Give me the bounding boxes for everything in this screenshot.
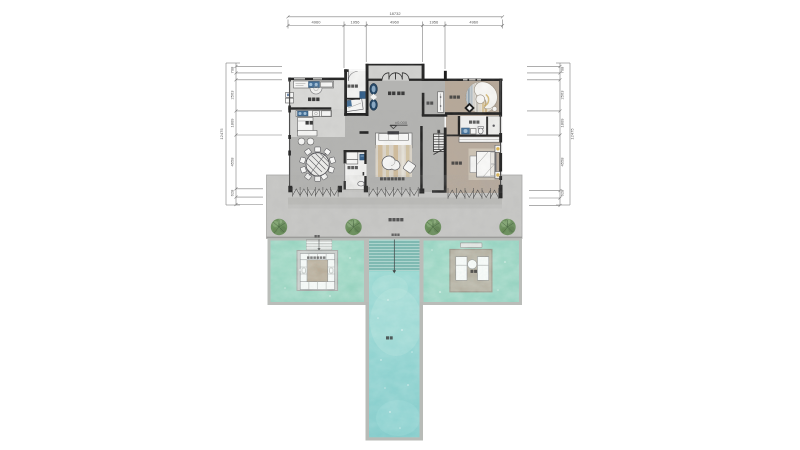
- svg-text:1956: 1956: [351, 20, 361, 25]
- svg-text:4960: 4960: [469, 20, 479, 25]
- svg-text:1809: 1809: [230, 118, 235, 128]
- svg-text:1956: 1956: [429, 20, 439, 25]
- svg-text:708: 708: [230, 66, 235, 73]
- svg-text:2563: 2563: [230, 90, 235, 100]
- svg-text:628: 628: [230, 189, 235, 196]
- svg-text:4558: 4558: [560, 157, 565, 167]
- svg-text:12475: 12475: [570, 128, 575, 140]
- svg-text:628: 628: [560, 189, 565, 196]
- svg-text:708: 708: [560, 66, 565, 73]
- svg-text:4960: 4960: [312, 20, 322, 25]
- svg-text:1809: 1809: [560, 118, 565, 128]
- svg-text:4558: 4558: [230, 157, 235, 167]
- svg-text:12475: 12475: [219, 128, 224, 140]
- svg-text:2563: 2563: [560, 90, 565, 100]
- svg-text:18732: 18732: [389, 11, 401, 16]
- svg-text:4960: 4960: [390, 20, 400, 25]
